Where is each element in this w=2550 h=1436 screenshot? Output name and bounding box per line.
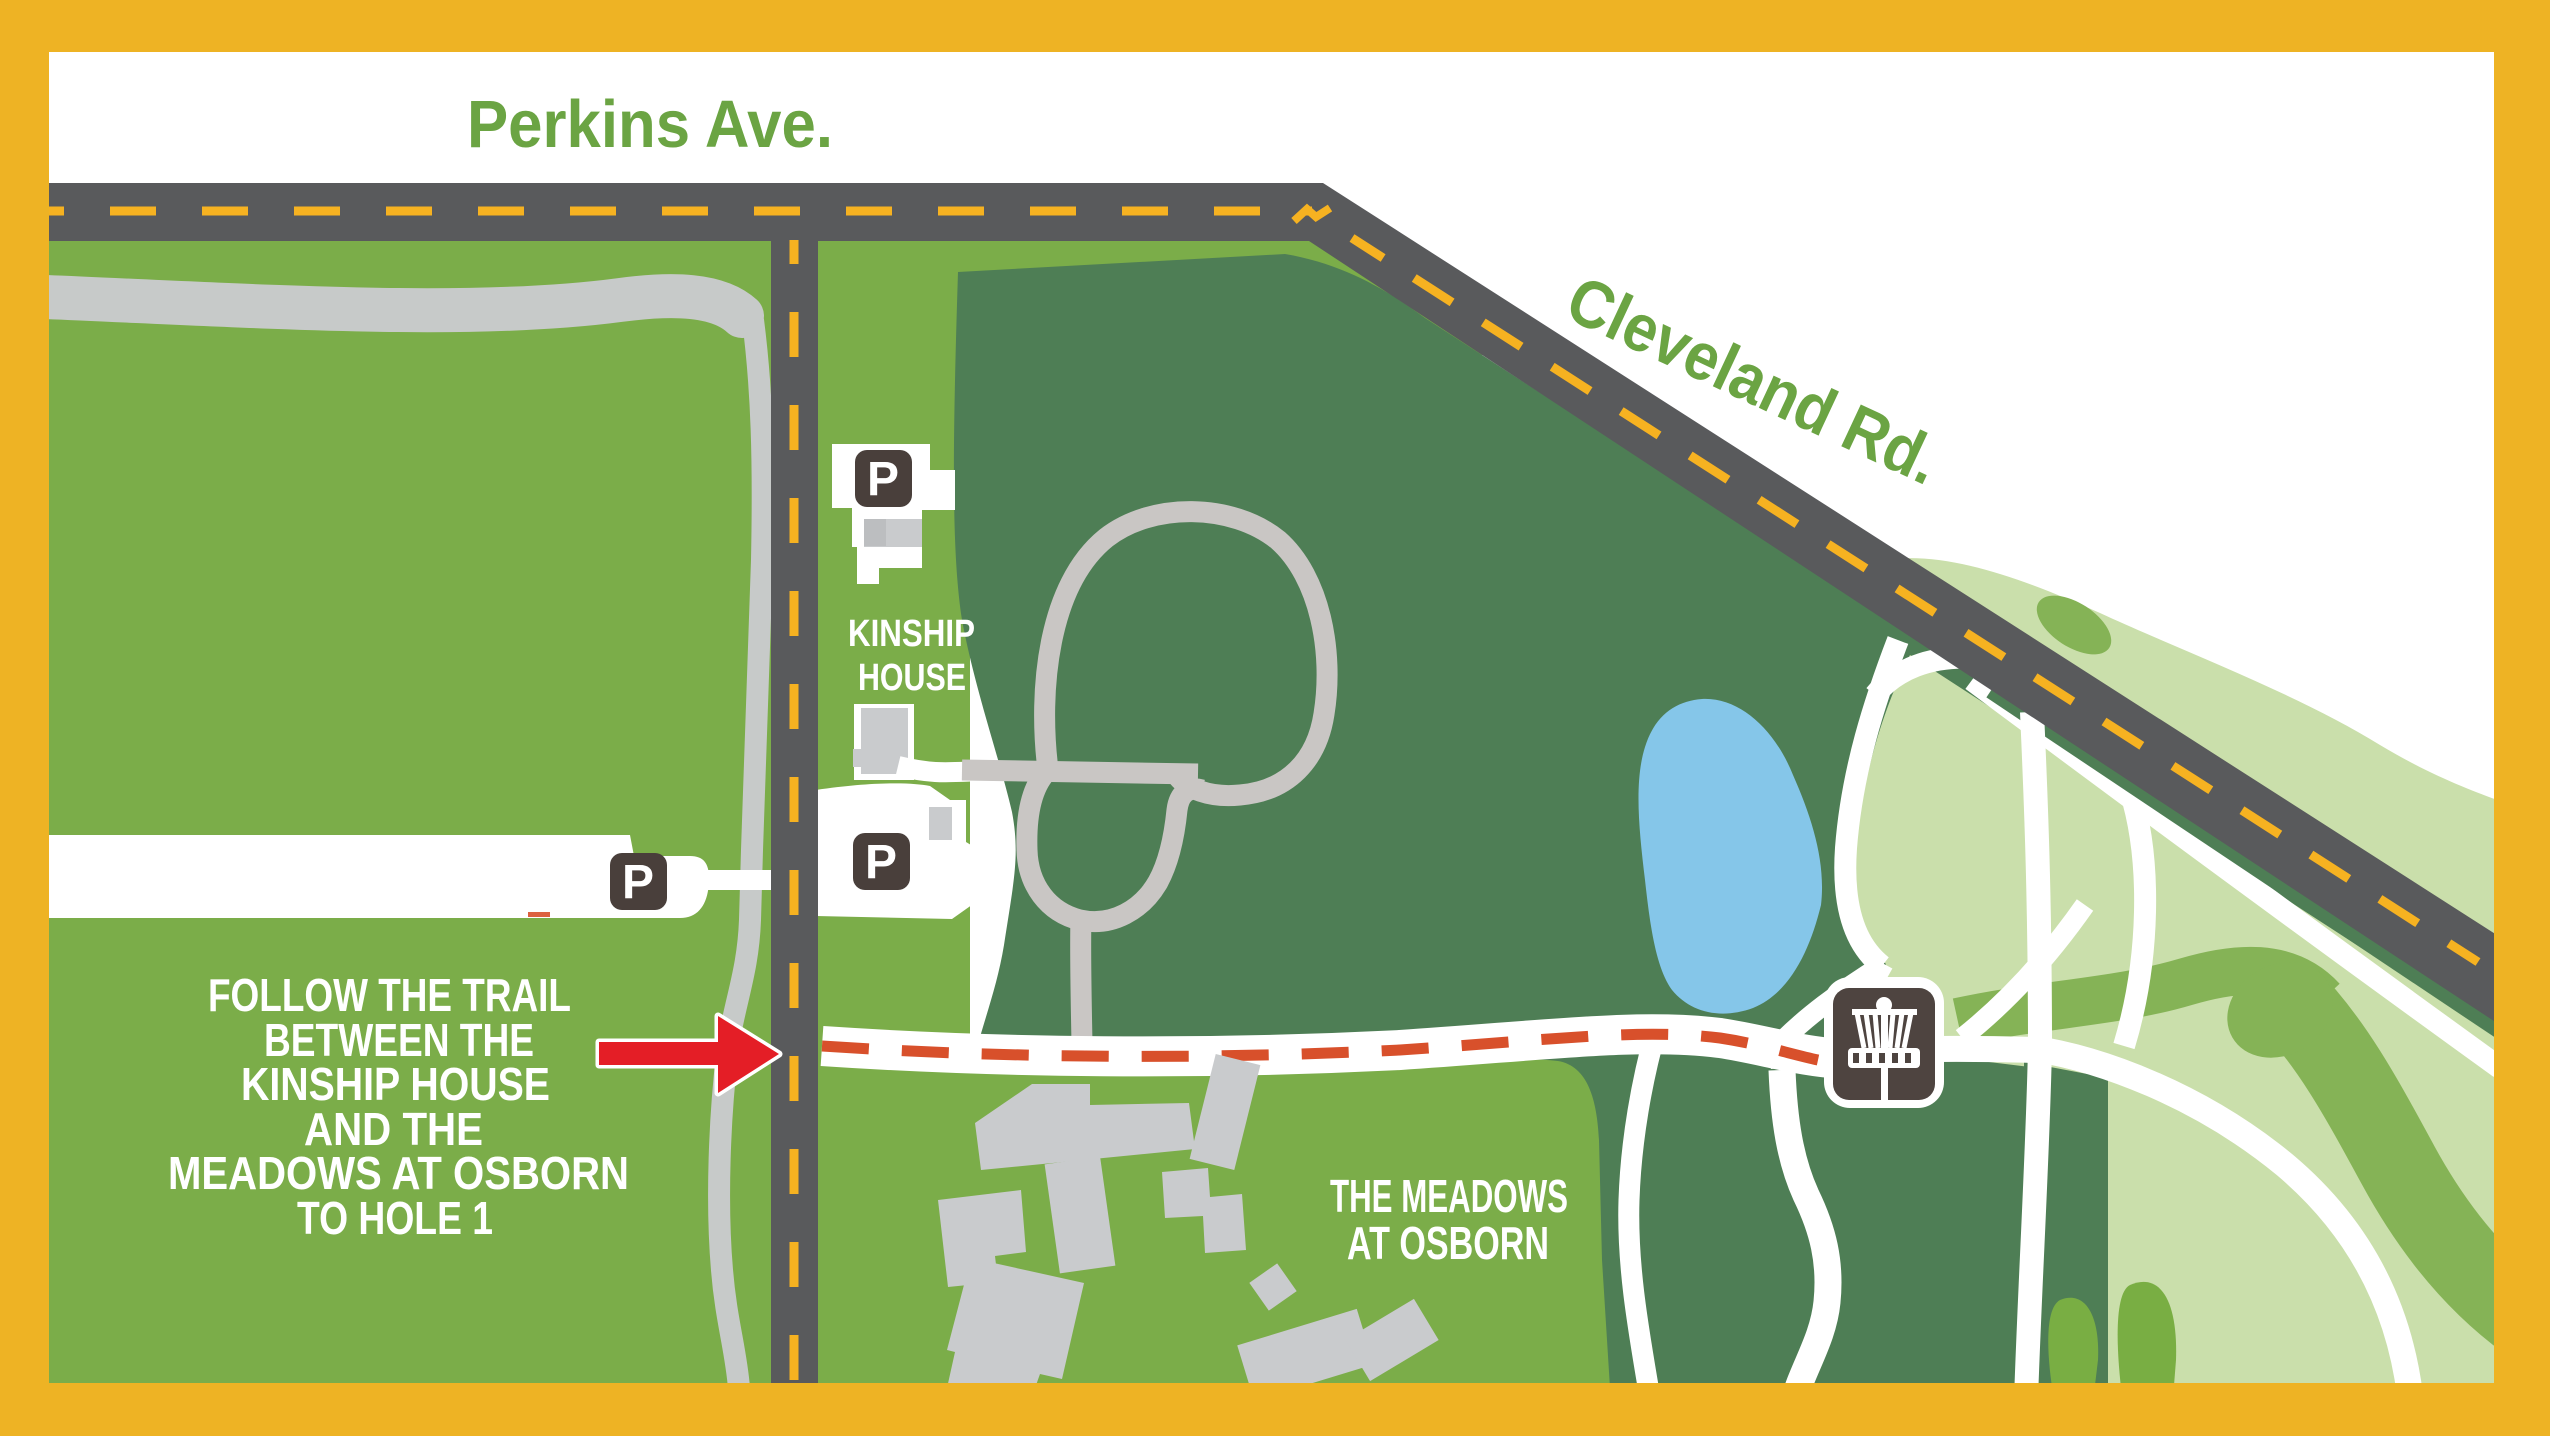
svg-text:TO HOLE 1: TO HOLE 1 bbox=[297, 1192, 493, 1244]
svg-text:KINSHIP: KINSHIP bbox=[848, 613, 975, 655]
svg-text:THE MEADOWS: THE MEADOWS bbox=[1330, 1170, 1568, 1222]
svg-text:Perkins Ave.: Perkins Ave. bbox=[467, 87, 833, 162]
svg-text:HOUSE: HOUSE bbox=[858, 657, 966, 699]
svg-text:P: P bbox=[622, 856, 654, 909]
svg-text:P: P bbox=[867, 453, 899, 506]
svg-text:P: P bbox=[865, 836, 897, 889]
svg-text:AT OSBORN: AT OSBORN bbox=[1347, 1217, 1549, 1269]
